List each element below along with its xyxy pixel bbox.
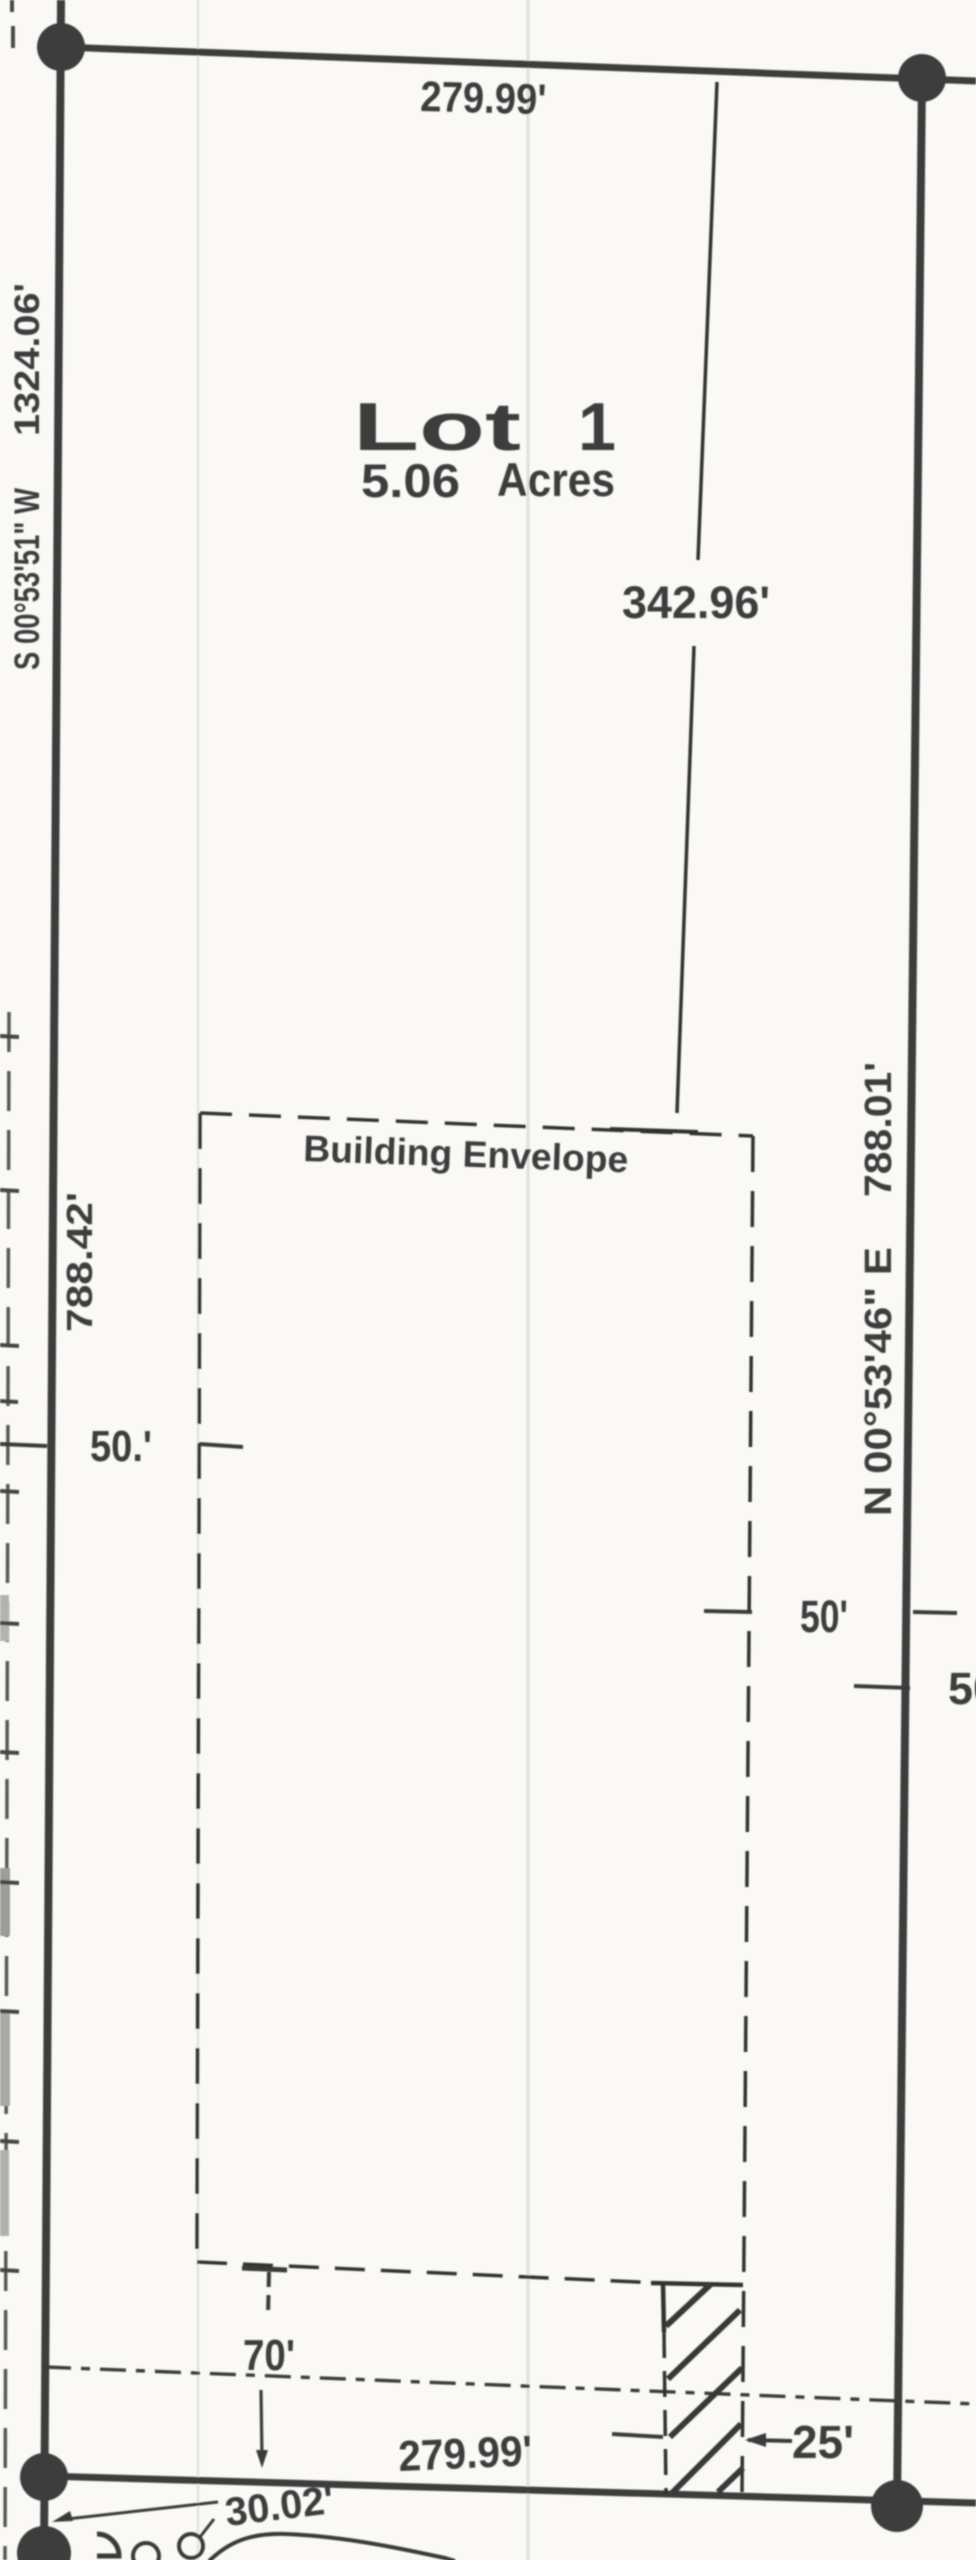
svg-text:279.99': 279.99': [397, 2427, 533, 2481]
svg-text:70': 70': [243, 2331, 295, 2380]
svg-text:25': 25': [792, 2416, 854, 2468]
svg-text:S 00°53'51" W: S 00°53'51" W: [8, 488, 47, 670]
svg-text:1324.06': 1324.06': [8, 283, 47, 436]
svg-text:N 00°53'46" E: N 00°53'46" E: [858, 1247, 900, 1516]
svg-text:Acres: Acres: [497, 453, 615, 506]
svg-text:788.42': 788.42': [59, 1192, 100, 1332]
svg-text:50': 50': [800, 1591, 848, 1642]
svg-text:788.01': 788.01': [858, 1062, 900, 1197]
svg-text:279.99': 279.99': [420, 73, 547, 124]
svg-text:50.': 50.': [90, 1422, 152, 1471]
svg-text:342.96': 342.96': [622, 577, 770, 628]
svg-text:50': 50': [948, 1663, 976, 1714]
svg-text:5.06: 5.06: [361, 454, 460, 507]
